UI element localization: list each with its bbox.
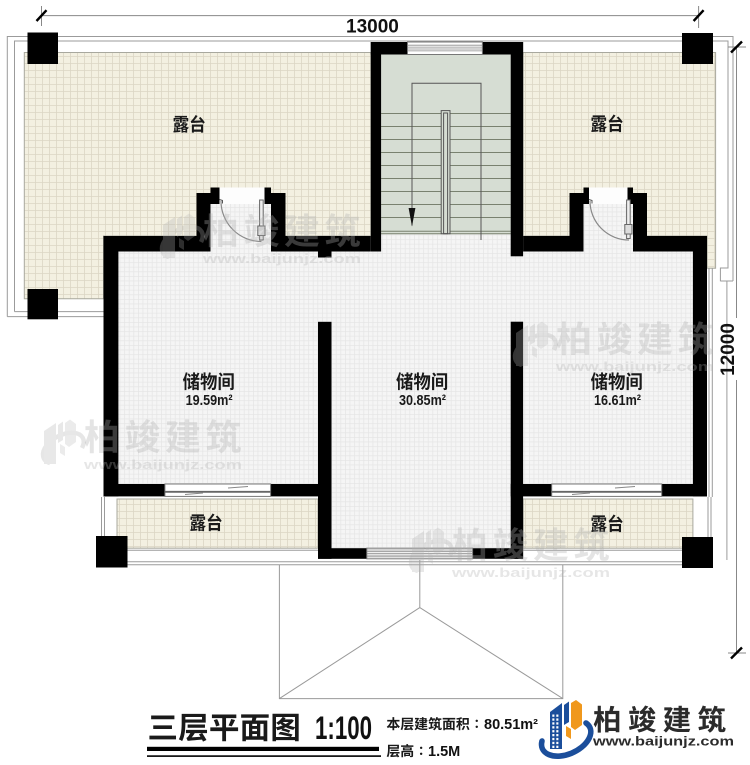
svg-text:13000: 13000 [346,17,399,38]
svg-text:www.baijunjz.com: www.baijunjz.com [202,251,361,266]
svg-text:19.59m²: 19.59m² [186,392,233,409]
svg-text:www.baijunjz.com: www.baijunjz.com [451,565,610,580]
svg-text:1.5M: 1.5M [428,744,460,760]
svg-text:30.85m²: 30.85m² [399,392,446,409]
svg-text:12000: 12000 [718,323,739,376]
svg-text:www.baijunjz.com: www.baijunjz.com [592,734,734,749]
svg-text:16.61m²: 16.61m² [594,392,641,409]
svg-text:www.baijunjz.com: www.baijunjz.com [555,359,714,374]
svg-text:www.baijunjz.com: www.baijunjz.com [83,457,242,472]
svg-text:1:100: 1:100 [315,710,372,746]
svg-text:80.51m²: 80.51m² [484,717,538,733]
